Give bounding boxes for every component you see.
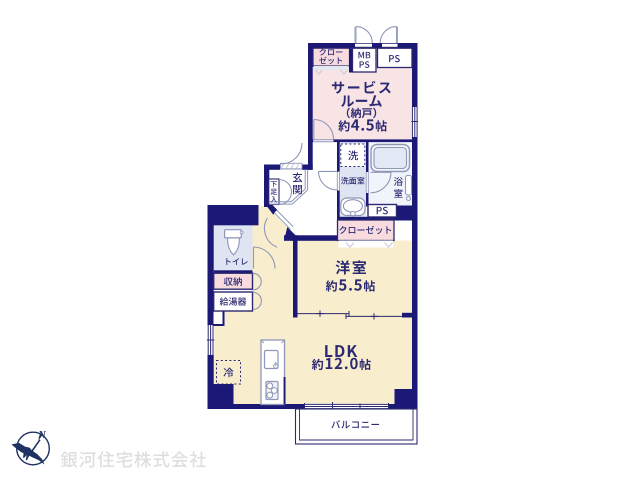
svg-text:N: N: [37, 430, 46, 441]
